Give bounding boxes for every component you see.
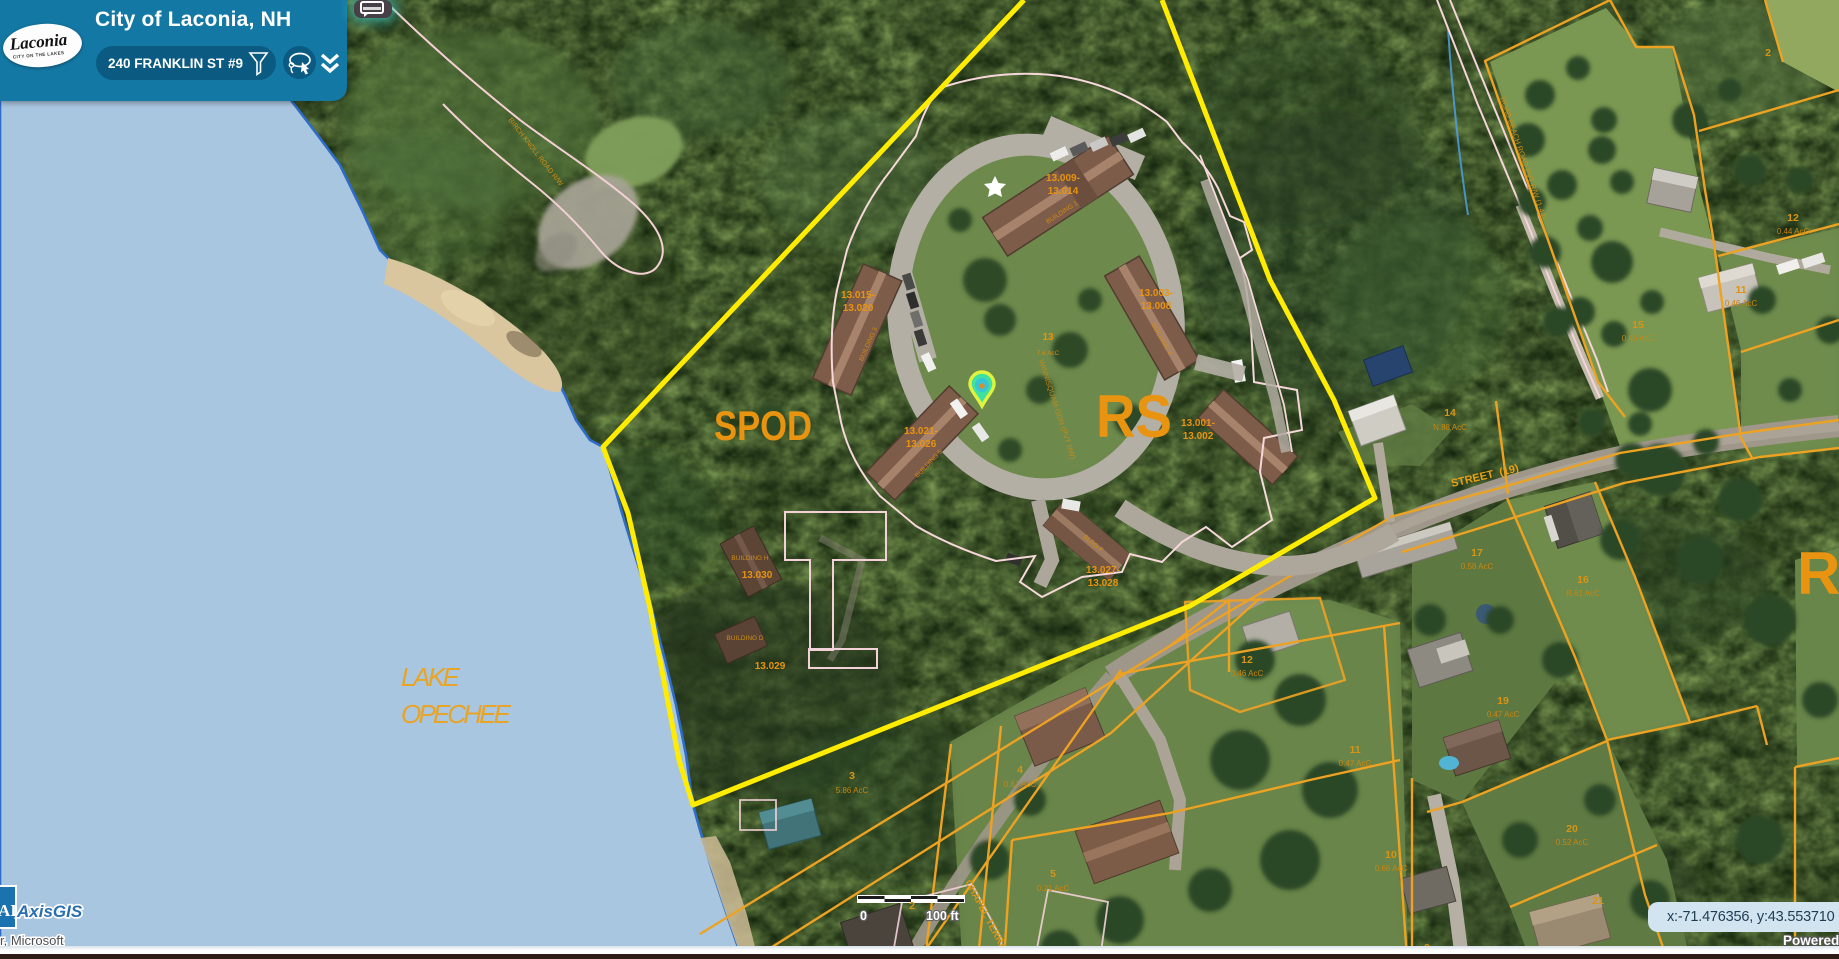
svg-text:OPECHEE: OPECHEE — [401, 699, 512, 729]
svg-text:13.003-: 13.003- — [1139, 288, 1173, 299]
svg-text:13.009-: 13.009- — [1046, 173, 1080, 184]
svg-text:0.61 AcC: 0.61 AcC — [1004, 780, 1037, 789]
svg-text:0.52 AcC: 0.52 AcC — [1556, 838, 1589, 847]
svg-text:AxisGIS: AxisGIS — [16, 902, 83, 921]
svg-text:16: 16 — [1577, 574, 1589, 586]
svg-text:SPOD: SPOD — [714, 402, 812, 449]
svg-text:0: 0 — [860, 909, 867, 923]
svg-text:13.027-: 13.027- — [1086, 565, 1120, 576]
svg-text:12: 12 — [1787, 212, 1799, 224]
svg-text:12: 12 — [1241, 654, 1253, 666]
svg-text:13.021-: 13.021- — [904, 426, 938, 437]
svg-text:N.88 AcC: N.88 AcC — [1433, 423, 1467, 432]
svg-text:13.015-: 13.015- — [841, 290, 875, 301]
svg-text:19: 19 — [1497, 695, 1509, 707]
svg-text:LAKE: LAKE — [401, 662, 461, 692]
svg-text:4: 4 — [1017, 764, 1023, 776]
svg-text:0.47 AcC: 0.47 AcC — [1487, 710, 1520, 719]
svg-text:3: 3 — [849, 770, 855, 782]
svg-text:13.020: 13.020 — [843, 303, 874, 314]
svg-text:11: 11 — [1735, 284, 1746, 296]
svg-text:13.001-: 13.001- — [1181, 418, 1215, 429]
svg-text:0.21 AcC: 0.21 AcC — [1037, 884, 1070, 893]
svg-text:0.46 AcC: 0.46 AcC — [1622, 334, 1655, 343]
svg-text:R.61 AcC: R.61 AcC — [1566, 589, 1600, 598]
svg-text:0.46 AcC: 0.46 AcC — [1725, 299, 1758, 308]
svg-text:13.030: 13.030 — [742, 570, 773, 581]
svg-text:13.014: 13.014 — [1048, 186, 1079, 197]
svg-text:13.028: 13.028 — [1088, 578, 1119, 589]
svg-text:11: 11 — [1349, 744, 1360, 756]
svg-text:13.008: 13.008 — [1141, 301, 1172, 312]
svg-text:BUILDING H: BUILDING H — [731, 555, 769, 562]
svg-text:RS: RS — [1096, 383, 1172, 450]
svg-text:2: 2 — [1765, 47, 1771, 59]
svg-text:7.6 AcC: 7.6 AcC — [1037, 350, 1060, 357]
svg-text:0.44 AcC: 0.44 AcC — [1777, 227, 1810, 236]
svg-text:13.026: 13.026 — [906, 439, 937, 450]
svg-text:13.029: 13.029 — [755, 661, 786, 672]
svg-text:10: 10 — [1385, 849, 1397, 861]
svg-text:14: 14 — [1444, 407, 1456, 419]
svg-text:0.47 AcC: 0.47 AcC — [1339, 759, 1372, 768]
svg-text:20: 20 — [1566, 823, 1578, 835]
svg-text:15: 15 — [1632, 319, 1644, 331]
svg-text:13: 13 — [1042, 332, 1054, 343]
svg-text:21: 21 — [1592, 895, 1604, 907]
svg-text:AI: AI — [0, 901, 17, 920]
svg-text:17: 17 — [1471, 547, 1483, 559]
svg-text:RS: RS — [1797, 540, 1839, 607]
svg-text:2: 2 — [909, 900, 915, 912]
svg-text:BUILDING D: BUILDING D — [726, 635, 764, 642]
svg-text:5.86 AcC: 5.86 AcC — [836, 786, 869, 795]
svg-text:0.66 AcC: 0.66 AcC — [1375, 864, 1408, 873]
svg-text:100 ft: 100 ft — [926, 909, 959, 923]
svg-text:13.002: 13.002 — [1183, 431, 1214, 442]
svg-text:0.58 AcC: 0.58 AcC — [1461, 562, 1494, 571]
svg-text:5: 5 — [1050, 868, 1056, 880]
svg-text:0.46 AcC: 0.46 AcC — [1231, 669, 1264, 678]
